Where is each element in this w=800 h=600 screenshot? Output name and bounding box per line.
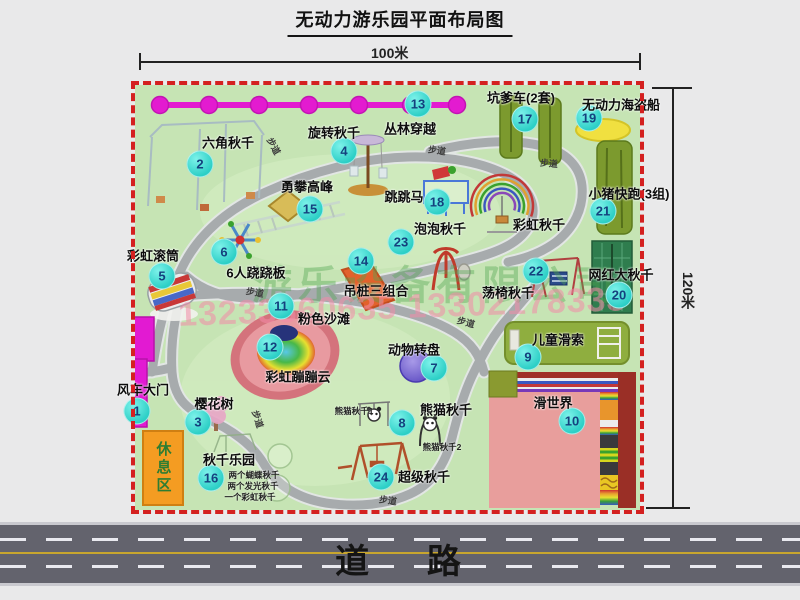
attraction-marker-18: 18 — [424, 189, 451, 216]
attraction-label-11: 粉色沙滩 — [298, 309, 350, 328]
attraction-label-23: 泡泡秋千 — [414, 219, 466, 238]
attraction-label-4: 旋转秋千 — [308, 123, 360, 142]
attraction-marker-2: 2 — [187, 151, 214, 178]
attraction-marker-6: 6 — [211, 239, 238, 266]
attraction-marker-22: 22 — [523, 258, 550, 285]
attraction-label-2: 六角秋千 — [202, 133, 254, 152]
attraction-marker-7: 7 — [421, 355, 448, 382]
attraction-marker-11: 11 — [268, 293, 295, 320]
attraction-label-19: 无动力海盗船 — [582, 95, 660, 114]
attraction-marker-8: 8 — [389, 410, 416, 437]
attraction-label-13: 丛林穿越 — [384, 119, 436, 138]
attraction-label-16: 秋千乐园 — [203, 450, 255, 469]
attraction-marker-10: 10 — [559, 408, 586, 435]
road: 道 路 — [0, 522, 800, 586]
sub-label-1: 熊猫秋千2 — [423, 441, 462, 453]
attraction-label-10: 滑世界 — [533, 393, 572, 412]
attraction-marker-14: 14 — [348, 248, 375, 275]
attraction-marker-1: 1 — [124, 398, 151, 425]
attraction-marker-12: 12 — [257, 334, 284, 361]
attraction-label-1: 风车大门 — [117, 380, 169, 399]
attraction-marker-24: 24 — [368, 464, 395, 491]
attraction-label-12: 彩虹蹦蹦云 — [265, 367, 330, 386]
dimension-tick-right-bottom — [646, 507, 690, 509]
attraction-label-18: 跳跳马 — [384, 187, 423, 206]
footpath-label-1: 步道 — [427, 142, 447, 157]
attraction-marker-15: 15 — [297, 196, 324, 223]
attraction-label-9: 儿童滑索 — [532, 330, 584, 349]
attraction-label-彩虹秋千: 彩虹秋千 — [513, 215, 565, 234]
dimension-tick-top-right — [639, 53, 641, 70]
rest-area: 休息区 — [142, 430, 184, 506]
attraction-label-22: 荡椅秋千 — [482, 283, 534, 302]
attraction-marker-17: 17 — [512, 106, 539, 133]
sub-label-4: 一个彩虹秋千 — [224, 491, 275, 503]
attraction-marker-16: 16 — [198, 465, 225, 492]
attraction-label-14: 吊桩三组合 — [343, 281, 408, 300]
sub-label-0: 熊猫秋千1 — [335, 405, 374, 417]
attraction-label-3: 樱花树 — [194, 394, 233, 413]
attraction-label-20: 网红大秋千 — [588, 265, 653, 284]
attraction-label-15: 勇攀高峰 — [281, 177, 333, 196]
dimension-line-right — [672, 88, 674, 508]
attraction-marker-4: 4 — [331, 138, 358, 165]
footpath-label-2: 步道 — [539, 156, 558, 171]
attraction-label-17: 坑爹车(2套) — [487, 88, 555, 107]
attraction-marker-13: 13 — [405, 91, 432, 118]
page-title: 无动力游乐园平面布局图 — [288, 6, 513, 37]
attraction-marker-23: 23 — [388, 229, 415, 256]
attraction-marker-20: 20 — [606, 282, 633, 309]
attraction-label-24: 超级秋千 — [398, 467, 450, 486]
dimension-tick-right-top — [652, 87, 692, 89]
attraction-marker-5: 5 — [149, 263, 176, 290]
width-dimension-label: 100米 — [371, 43, 408, 63]
attraction-label-8: 熊猫秋千 — [420, 400, 472, 419]
rest-area-label: 休息区 — [153, 441, 174, 495]
dimension-tick-top-left — [139, 53, 141, 70]
park-layout-plan: 无动力游乐园平面布局图 100米 120米 — [0, 0, 800, 600]
attraction-label-21: 小猪快跑(3组) — [589, 184, 670, 203]
attraction-marker-3: 3 — [185, 409, 212, 436]
footpath-label-6: 步道 — [378, 492, 398, 507]
attraction-label-5: 彩虹滚筒 — [127, 246, 179, 265]
height-dimension-label: 120米 — [678, 272, 698, 309]
road-label: 道 路 — [0, 534, 800, 583]
attraction-label-6: 6人跷跷板 — [226, 263, 285, 282]
attraction-label-7: 动物转盘 — [388, 340, 440, 359]
